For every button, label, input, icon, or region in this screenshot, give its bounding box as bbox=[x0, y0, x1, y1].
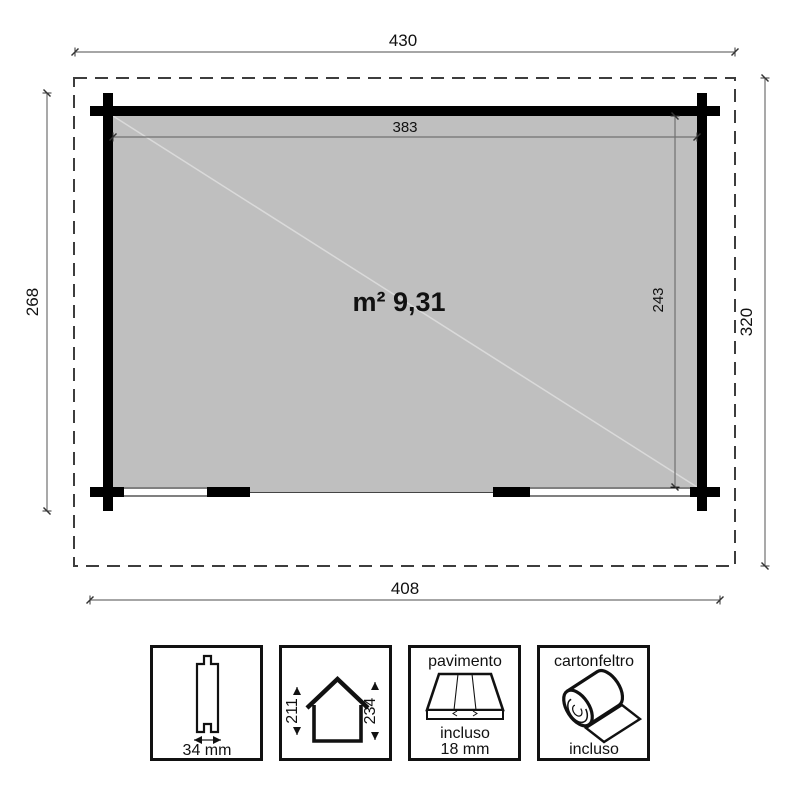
window-opening-left bbox=[124, 487, 207, 497]
floor-title-label: pavimento bbox=[428, 653, 502, 670]
roofing-felt-roll-icon bbox=[558, 666, 640, 742]
legend-roof-felt: cartonfeltro incluso bbox=[537, 645, 650, 761]
floor-included-label: incluso bbox=[440, 725, 490, 742]
ridge-height-label: 234 bbox=[362, 698, 379, 725]
total-width-label: 430 bbox=[389, 31, 417, 50]
base-depth-label: 268 bbox=[23, 288, 42, 316]
legend-wall-thickness: 34 mm bbox=[150, 645, 263, 761]
legend-floor-included: pavimento incluso 18 mm bbox=[408, 645, 521, 761]
legend-house-heights: 211 234 bbox=[279, 645, 392, 761]
shed-floor-plan-diagram: 430 408 268 320 383 243 m² 9,31 34 mm bbox=[0, 0, 800, 800]
base-width-label: 408 bbox=[391, 579, 419, 598]
felt-title-label: cartonfeltro bbox=[554, 653, 634, 670]
floor-thickness-label: 18 mm bbox=[441, 741, 490, 758]
floor-area-label: m² 9,31 bbox=[352, 287, 445, 317]
felt-included-label: incluso bbox=[569, 741, 619, 758]
wall-height-label: 211 bbox=[284, 698, 301, 724]
plank-profile-icon bbox=[194, 656, 221, 740]
floorboards-icon bbox=[427, 674, 503, 719]
wall-thickness-label: 34 mm bbox=[183, 742, 232, 758]
floor-plan: 430 408 268 320 383 243 m² 9,31 bbox=[0, 0, 800, 632]
inner-width-label: 383 bbox=[392, 119, 417, 136]
top-wall bbox=[103, 106, 707, 116]
right-wall bbox=[697, 106, 707, 497]
house-elevation-icon bbox=[307, 679, 368, 741]
inner-depth-label: 243 bbox=[650, 287, 667, 312]
left-wall bbox=[103, 106, 113, 497]
door-opening bbox=[250, 487, 493, 493]
window-opening-right bbox=[530, 487, 690, 497]
total-depth-label: 320 bbox=[737, 308, 756, 336]
